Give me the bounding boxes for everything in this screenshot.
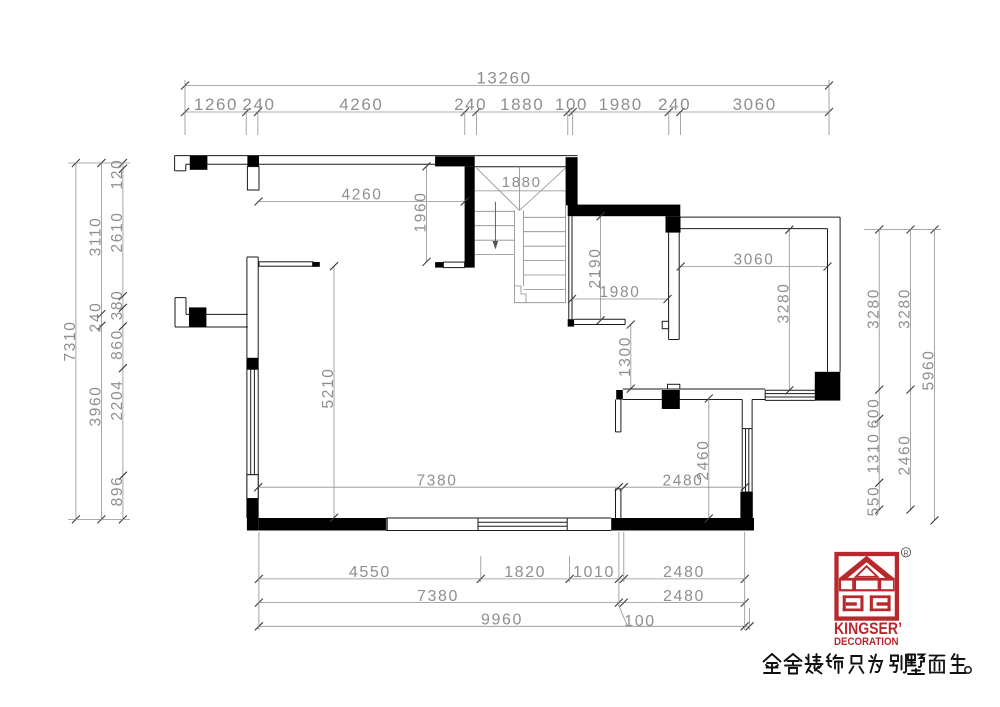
svg-text:3280: 3280 — [865, 288, 882, 329]
svg-text:3060: 3060 — [733, 95, 777, 114]
svg-text:380: 380 — [109, 290, 126, 321]
svg-text:5960: 5960 — [921, 350, 938, 391]
svg-text:2204: 2204 — [109, 380, 126, 421]
svg-text:3060: 3060 — [734, 252, 775, 269]
svg-text:3280: 3280 — [897, 288, 914, 329]
svg-text:1980: 1980 — [599, 95, 643, 114]
svg-text:240: 240 — [242, 95, 275, 114]
svg-text:1880: 1880 — [502, 174, 542, 191]
svg-text:2610: 2610 — [109, 212, 126, 253]
svg-text:2190: 2190 — [587, 248, 604, 289]
svg-text:1300: 1300 — [617, 336, 634, 377]
svg-text:1310: 1310 — [865, 433, 882, 474]
svg-text:1980: 1980 — [600, 284, 641, 301]
svg-text:860: 860 — [109, 329, 126, 360]
svg-text:1820: 1820 — [504, 564, 546, 581]
svg-text:2480: 2480 — [663, 588, 705, 605]
svg-text:100: 100 — [555, 95, 588, 114]
svg-text:600: 600 — [865, 398, 882, 429]
svg-text:7310: 7310 — [62, 321, 79, 362]
svg-text:896: 896 — [109, 476, 126, 507]
svg-text:3110: 3110 — [88, 217, 105, 257]
svg-text:DECORATION: DECORATION — [834, 636, 899, 648]
svg-text:1960: 1960 — [413, 192, 430, 233]
svg-text:3960: 3960 — [88, 386, 105, 427]
svg-text:2460: 2460 — [897, 435, 914, 476]
svg-text:240: 240 — [658, 95, 691, 114]
svg-text:7380: 7380 — [417, 588, 459, 605]
svg-text:R: R — [903, 551, 908, 558]
svg-text:2480: 2480 — [663, 564, 705, 581]
svg-text:240: 240 — [454, 95, 487, 114]
svg-text:3280: 3280 — [776, 283, 793, 324]
svg-text:2460: 2460 — [695, 440, 712, 481]
svg-text:4260: 4260 — [342, 187, 383, 204]
svg-text:9960: 9960 — [481, 612, 523, 629]
svg-text:1880: 1880 — [500, 95, 544, 114]
svg-text:1260: 1260 — [194, 95, 238, 114]
svg-text:1010: 1010 — [573, 564, 615, 581]
svg-text:5210: 5210 — [320, 368, 337, 409]
svg-text:240: 240 — [88, 302, 105, 333]
svg-text:4550: 4550 — [349, 564, 391, 581]
svg-text:100: 100 — [624, 613, 656, 630]
svg-text:550: 550 — [865, 486, 882, 517]
svg-text:13260: 13260 — [476, 69, 531, 88]
svg-text:4260: 4260 — [339, 95, 383, 114]
svg-text:7380: 7380 — [417, 472, 458, 489]
